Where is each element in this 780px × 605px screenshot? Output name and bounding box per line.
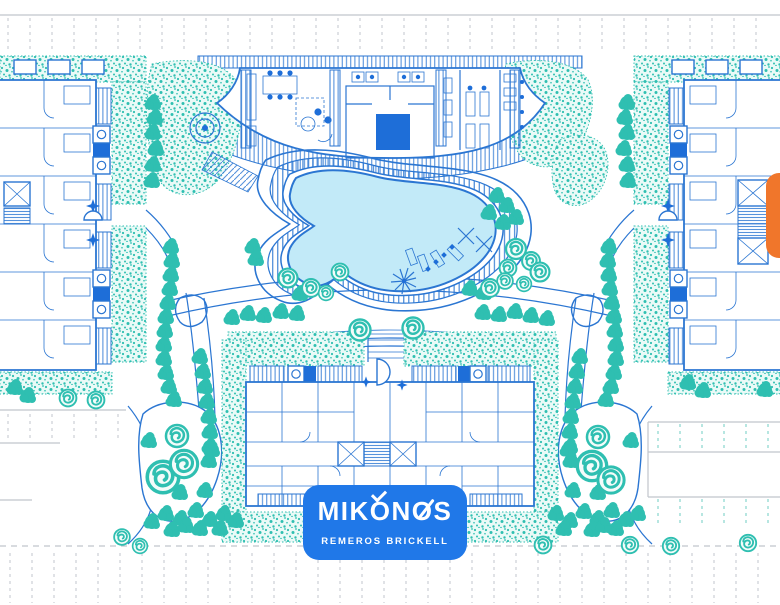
bush-icon [224,309,241,325]
bush-icon [606,364,623,380]
tree-icon [481,279,499,297]
bush-icon [256,307,273,323]
tree-icon [622,537,638,553]
tree-icon [740,535,756,551]
tree-icon [332,264,349,281]
bush-icon [617,109,634,125]
bush-icon [620,172,637,188]
bush-icon [572,348,589,364]
bush-icon [523,307,540,323]
parking-ticks-right [658,424,768,527]
bush-icon [601,238,618,254]
bush-icon [619,94,636,110]
bush-icon [195,363,212,379]
bush-icon [608,336,625,352]
bush-icon [273,303,290,319]
logo-title-wrap: MIKONOS [303,485,467,529]
bush-icon [607,322,624,338]
tree-icon [403,318,424,339]
tree-icon [114,529,130,545]
stairwell [738,180,768,264]
bush-icon [163,238,180,254]
tree-icon [60,390,77,407]
tree-icon [535,537,552,554]
logo-badge: MIKONOS REMEROS BRICKELL [303,485,467,560]
tree-icon [587,426,609,448]
bush-icon [619,124,636,140]
tree-icon [133,539,148,554]
bush-icon [606,308,623,324]
tree-icon [88,392,105,409]
bush-icon [567,378,584,394]
logo-subtitle: REMEROS BRICKELL [303,536,467,547]
bush-icon [162,280,179,296]
bush-icon [602,280,619,296]
bush-icon [569,363,586,379]
tree-icon [170,450,197,477]
tree-icon [279,269,298,288]
bush-icon [156,336,173,352]
building-north-east [669,80,780,370]
logo-title: MIKONOS [303,498,467,524]
garden-bed-right-2 [552,135,608,205]
bush-icon [197,378,214,394]
site-plan: MIKONOS REMEROS BRICKELL [0,0,780,605]
tree-icon [319,286,334,301]
parking-row-bottom [10,553,758,603]
tree-icon [598,467,624,493]
bush-icon [608,350,625,366]
bush-icon [507,303,524,319]
bush-icon [240,305,257,321]
bush-icon [619,156,636,172]
orange-marker[interactable] [766,173,780,258]
bush-icon [565,393,582,409]
bush-icon [475,304,492,320]
building-north-west [0,80,111,370]
stairwell [4,182,30,224]
bush-icon [160,294,177,310]
bush-icon [491,306,508,322]
tree-icon [663,538,679,554]
bush-icon [156,350,173,366]
parking-row-top [8,18,756,52]
building-south [246,359,534,506]
parking-ticks-left [8,414,118,440]
tree-icon [531,263,550,282]
bush-icon [158,364,175,380]
bush-icon [157,322,174,338]
tree-icon [350,320,371,341]
bush-icon [601,266,618,282]
bush-icon [289,305,306,321]
bush-icon [163,266,180,282]
bush-icon [604,294,621,310]
tree-icon [302,279,320,297]
tree-icon [517,277,532,292]
bush-icon [539,310,556,326]
tree-icon [166,425,188,447]
bush-icon [199,393,216,409]
bush-icon [616,140,633,156]
bush-icon [158,308,175,324]
